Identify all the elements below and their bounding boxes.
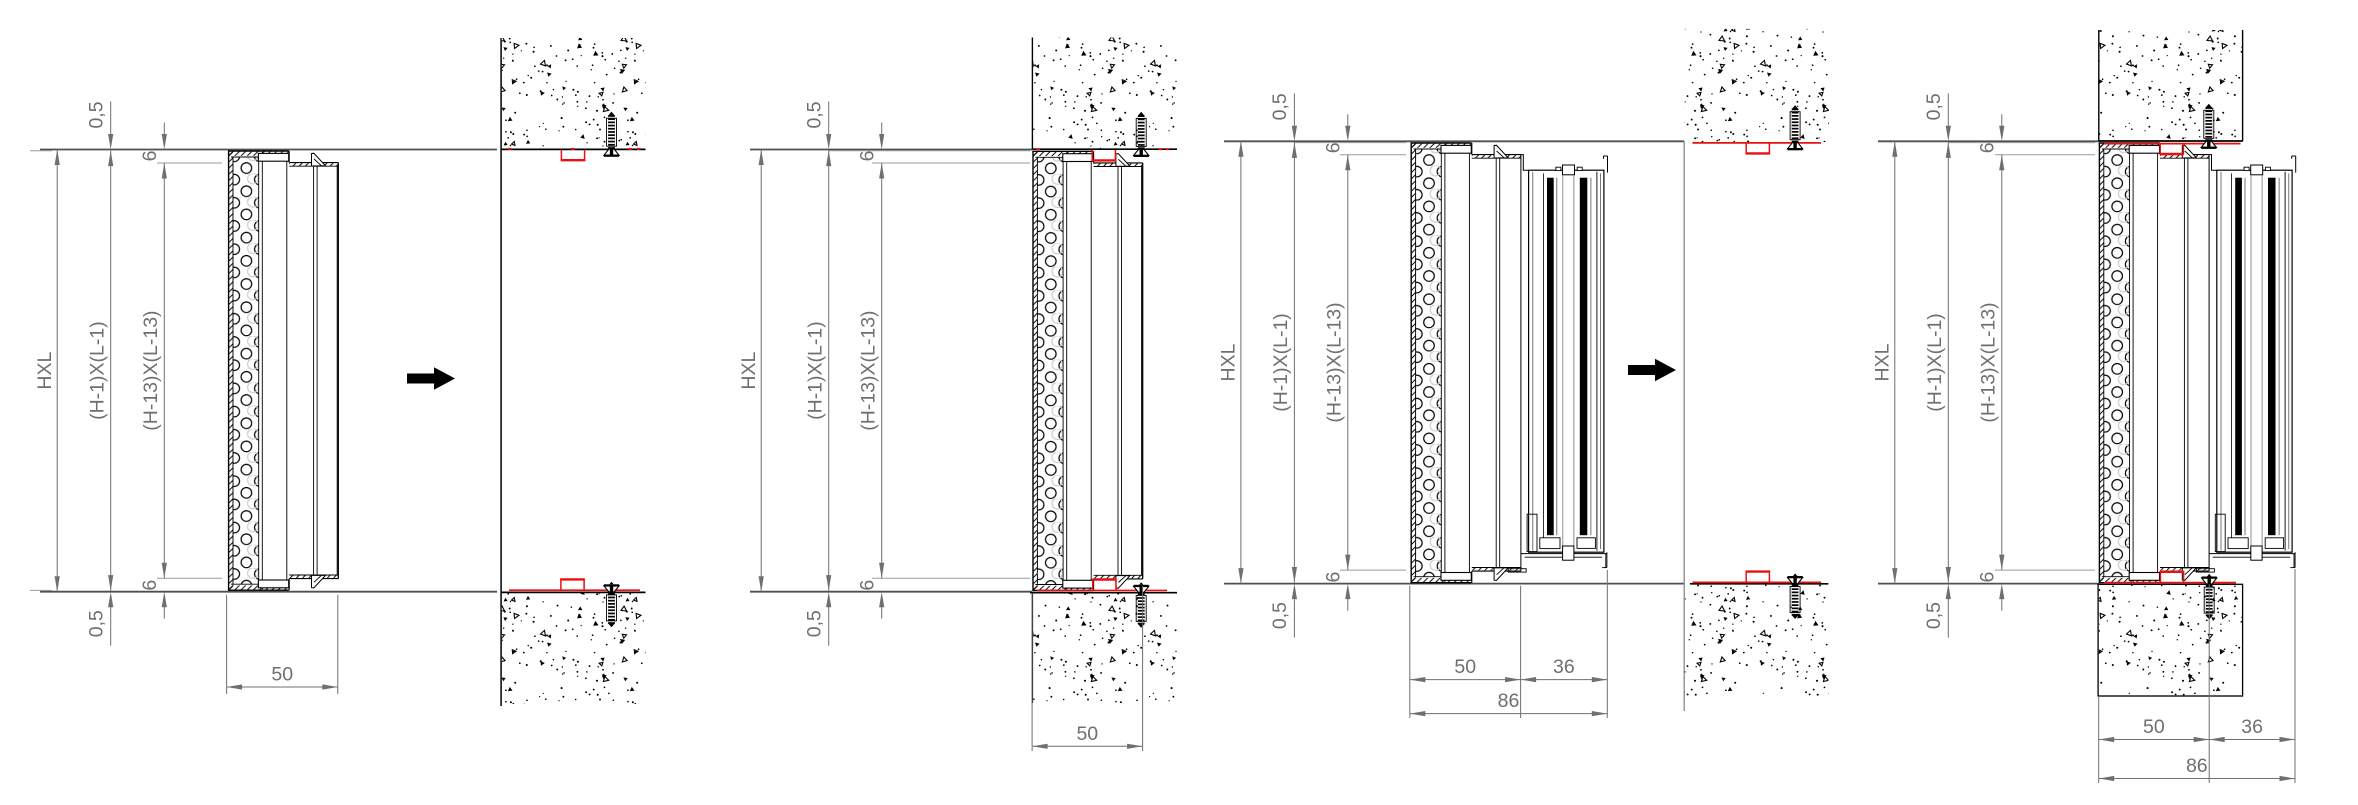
svg-text:0,5: 0,5 bbox=[85, 610, 107, 637]
svg-text:6: 6 bbox=[1322, 142, 1344, 153]
svg-text:6: 6 bbox=[856, 580, 878, 591]
svg-text:36: 36 bbox=[2241, 716, 2263, 738]
svg-text:0,5: 0,5 bbox=[1269, 602, 1291, 629]
svg-text:6: 6 bbox=[1976, 142, 1998, 153]
svg-text:6: 6 bbox=[139, 151, 161, 162]
svg-text:(H-13)X(L-13): (H-13)X(L-13) bbox=[140, 310, 162, 430]
svg-text:HXL: HXL bbox=[738, 351, 760, 389]
svg-text:36: 36 bbox=[1553, 656, 1575, 678]
svg-text:6: 6 bbox=[856, 151, 878, 162]
svg-text:6: 6 bbox=[1976, 572, 1998, 583]
svg-text:6: 6 bbox=[1322, 572, 1344, 583]
svg-text:0,5: 0,5 bbox=[85, 101, 107, 128]
svg-text:6: 6 bbox=[139, 580, 161, 591]
svg-text:50: 50 bbox=[271, 664, 293, 686]
svg-text:(H-1)X(L-1): (H-1)X(L-1) bbox=[1924, 313, 1946, 412]
svg-text:0,5: 0,5 bbox=[1923, 93, 1945, 120]
svg-text:(H-13)X(L-13): (H-13)X(L-13) bbox=[1323, 302, 1345, 422]
svg-text:86: 86 bbox=[1498, 690, 1520, 712]
svg-text:(H-1)X(L-1): (H-1)X(L-1) bbox=[1270, 313, 1292, 412]
svg-text:0,5: 0,5 bbox=[1923, 602, 1945, 629]
svg-text:(H-13)X(L-13): (H-13)X(L-13) bbox=[1977, 302, 1999, 422]
svg-text:0,5: 0,5 bbox=[803, 610, 825, 637]
svg-text:HXL: HXL bbox=[1871, 343, 1893, 381]
svg-text:0,5: 0,5 bbox=[1269, 93, 1291, 120]
svg-text:(H-13)X(L-13): (H-13)X(L-13) bbox=[857, 310, 879, 430]
svg-text:HXL: HXL bbox=[1218, 343, 1240, 381]
svg-text:86: 86 bbox=[2186, 755, 2208, 777]
svg-text:50: 50 bbox=[2143, 716, 2165, 738]
svg-text:(H-1)X(L-1): (H-1)X(L-1) bbox=[86, 321, 108, 420]
svg-text:50: 50 bbox=[1454, 656, 1476, 678]
svg-text:HXL: HXL bbox=[34, 351, 56, 389]
svg-text:0,5: 0,5 bbox=[803, 101, 825, 128]
svg-text:50: 50 bbox=[1076, 723, 1098, 745]
svg-text:(H-1)X(L-1): (H-1)X(L-1) bbox=[804, 321, 826, 420]
